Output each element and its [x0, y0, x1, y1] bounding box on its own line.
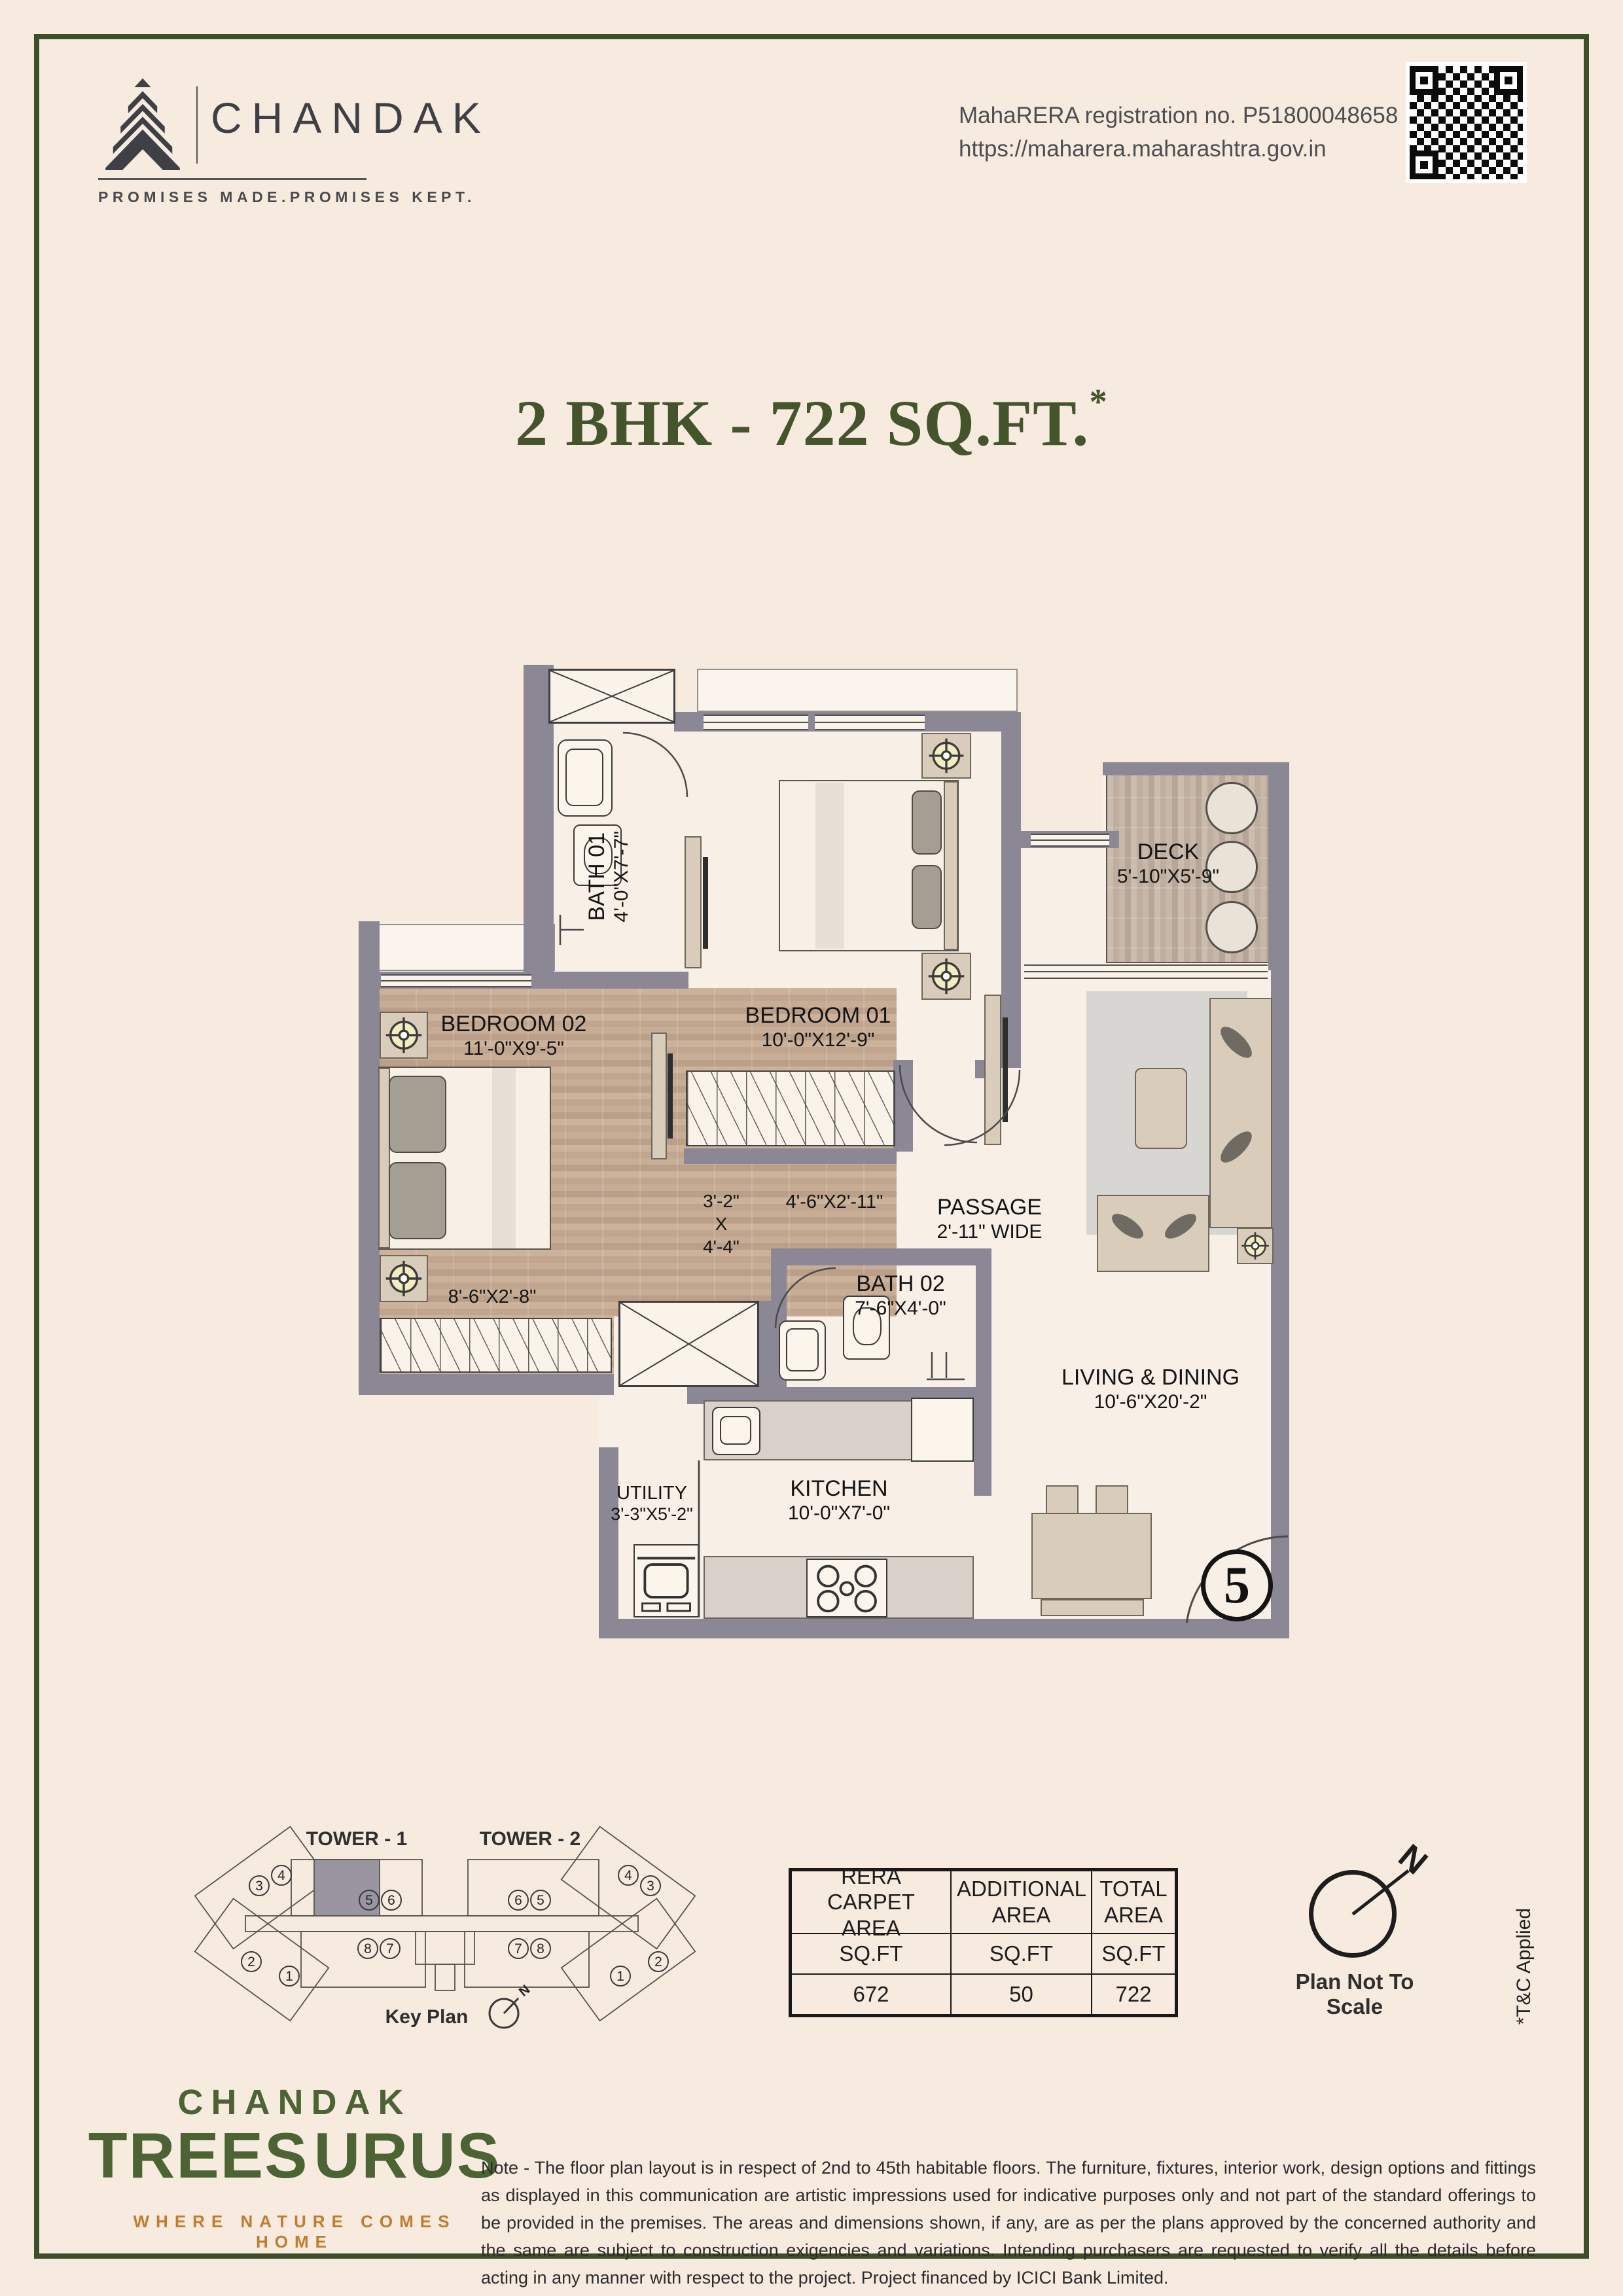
room-name: LIVING & DINING [1026, 1364, 1275, 1390]
floor-plan: BATH 01 4'-0"X7'-7" BEDROOM 01 10'-0"X12… [321, 641, 1446, 1623]
sofa [1209, 998, 1272, 1228]
qr-finder-icon [1494, 66, 1523, 95]
dining-table [1031, 1513, 1152, 1599]
wall [359, 921, 380, 1395]
keyplan-caption: Key Plan [385, 2006, 469, 2028]
unit-number: 3 [647, 1879, 654, 1894]
room-name: PASSAGE [908, 1194, 1071, 1220]
compass-north-label: N [1391, 1837, 1435, 1882]
room-label-bath2: BATH 02 7'-6"X4'-0" [822, 1271, 979, 1320]
kitchen-sink [712, 1407, 760, 1455]
ledge [697, 669, 1018, 712]
room-label-bedroom2: BEDROOM 02 11'-0"X9'-5" [402, 1011, 625, 1061]
unit-number: 8 [364, 1941, 372, 1956]
room-name: BEDROOM 02 [402, 1011, 625, 1037]
dining-bench [1041, 1599, 1144, 1616]
table-header: TOTAL AREA [1092, 1871, 1175, 1934]
wall [599, 1619, 1289, 1638]
dining-chair [1096, 1485, 1128, 1514]
pillow [912, 865, 942, 929]
key-plan: TOWER - 1 TOWER - 2 Key Plan 3 4 5 6 8 7… [183, 1819, 707, 2068]
unit-number: 4 [277, 1868, 285, 1883]
room-name: DECK [1099, 839, 1237, 865]
unit-number: 2 [247, 1954, 255, 1969]
table-value: 50 [952, 1975, 1092, 2014]
table-unit: SQ.FT [952, 1934, 1092, 1975]
side-table [1237, 1227, 1274, 1264]
tv-screen [668, 1053, 673, 1139]
unit-number: 4 [624, 1868, 632, 1883]
brochure-page: CHANDAK PROMISES MADE.PROMISES KEPT. Mah… [0, 0, 1623, 2296]
wall [359, 1374, 614, 1395]
wall [893, 1060, 913, 1152]
room-dim: 4'-0"X7'-7" [610, 831, 633, 922]
pillow [389, 1076, 446, 1153]
title-asterisk: * [1089, 381, 1108, 421]
room-label-kitchen: KITCHEN 10'-0"X7'-0" [741, 1475, 937, 1525]
wall [1268, 762, 1289, 970]
brand-tagline: PROMISES MADE.PROMISES KEPT. [98, 188, 476, 206]
side-note: *T&C Applied [1513, 1888, 1535, 2045]
loveseat [1097, 1195, 1209, 1272]
dining-chair [1046, 1485, 1079, 1514]
tv-unit [685, 836, 702, 968]
qr-code [1406, 62, 1527, 183]
side-note-text: *T&C Applied [1513, 1908, 1535, 2024]
dim-line: 4'-4" [675, 1235, 767, 1258]
nightstand [921, 733, 971, 779]
room-dim: 5'-10"X5'-9" [1099, 865, 1237, 888]
window [1024, 964, 1268, 979]
room-label-bath1: BATH 01 4'-0"X7'-7" [581, 782, 636, 972]
bed-runner [815, 783, 844, 949]
wall [1001, 712, 1021, 995]
qr-pattern [1410, 66, 1523, 179]
duct-shaft [618, 1301, 759, 1387]
table-header: ADDITIONAL AREA [952, 1871, 1092, 1934]
unit-number: 7 [514, 1941, 522, 1956]
chandak-pyramid-logo-icon [99, 77, 186, 170]
unit-number: 3 [255, 1879, 263, 1894]
logo-divider [196, 86, 198, 164]
footer-brand-name: CHANDAK [111, 2082, 478, 2123]
qr-finder-icon [1410, 150, 1438, 179]
pillow [389, 1162, 446, 1239]
sink-basin [786, 1328, 819, 1371]
unit-number: 5 [365, 1893, 373, 1908]
room-label-passage: PASSAGE 2'-11" WIDE [908, 1194, 1071, 1244]
logo-text-left: TREES [88, 2119, 309, 2193]
pillow [912, 790, 942, 855]
table-unit: SQ.FT [1092, 1934, 1175, 1975]
qr-finder-icon [1410, 66, 1438, 95]
wall [1103, 762, 1289, 775]
bed-headboard [944, 781, 958, 950]
wall [758, 1301, 771, 1387]
wall [684, 1148, 897, 1164]
wardrobe-dimension: 4'-6"X2'-11" [749, 1191, 919, 1213]
wardrobe [686, 1070, 895, 1146]
logo-rule [98, 178, 366, 180]
room-label-living: LIVING & DINING 10'-6"X20'-2" [1026, 1364, 1275, 1414]
unit-number: 1 [285, 1969, 293, 1984]
window [815, 715, 925, 730]
wall [599, 1447, 618, 1619]
bathroom-sink [779, 1320, 826, 1381]
bed-runner [492, 1068, 516, 1248]
disclaimer-note: Note - The floor plan layout is in respe… [481, 2154, 1536, 2292]
window [1031, 834, 1109, 847]
rera-registration: MahaRERA registration no. P51800048658 h… [959, 99, 1398, 166]
tv-screen [1003, 1017, 1008, 1122]
rera-url: https://maharera.maharashtra.gov.in [959, 133, 1398, 166]
deck-chair [1205, 782, 1258, 834]
room-dim: 10'-0"X12'-9" [713, 1029, 923, 1051]
unit-number: 6 [387, 1893, 395, 1908]
room-name: BATH 02 [822, 1271, 979, 1297]
room-dim: 11'-0"X9'-5" [402, 1037, 625, 1060]
room-name: BEDROOM 01 [713, 1002, 923, 1029]
table-value: 672 [792, 1975, 952, 2014]
wall [1271, 955, 1289, 1638]
room-dim: 10'-0"X7'-0" [741, 1502, 937, 1525]
tower2-label: TOWER - 2 [480, 1828, 580, 1850]
wall [771, 1248, 991, 1265]
unit-number: 8 [537, 1941, 544, 1956]
unit-number: 7 [386, 1941, 394, 1956]
coffee-table [1135, 1068, 1187, 1149]
table-value: 722 [1092, 1975, 1175, 2014]
rera-number: MahaRERA registration no. P51800048658 [959, 99, 1398, 133]
table-header: RERA CARPET AREA [792, 1871, 952, 1934]
room-label-deck: DECK 5'-10"X5'-9" [1099, 839, 1237, 889]
wardrobe-dimension: 8'-6"X2'-8" [414, 1286, 571, 1308]
unit-number: 1 [616, 1969, 624, 1984]
room-dim: 7'-6"X4'-0" [822, 1297, 979, 1320]
wardrobe [380, 1318, 612, 1373]
wall [537, 972, 688, 989]
room-dim: 2'-11" WIDE [908, 1220, 1071, 1243]
window [704, 715, 808, 730]
brand-name: CHANDAK [211, 93, 491, 143]
kitchen-appliance [911, 1398, 974, 1462]
room-name: KITCHEN [741, 1475, 937, 1502]
unit-number-badge: 5 [1201, 1549, 1273, 1621]
sink-basin [720, 1416, 751, 1445]
stove [806, 1559, 887, 1617]
dim-line: X [675, 1212, 767, 1235]
plan-scale-note: Plan Not To Scale [1270, 1969, 1440, 2019]
tv-unit [984, 995, 1001, 1145]
window [381, 974, 531, 987]
title-text: 2 BHK - 722 SQ.FT. [515, 387, 1089, 459]
room-name: UTILITY [599, 1482, 704, 1504]
area-table: RERA CARPET AREA ADDITIONAL AREA TOTAL A… [789, 1868, 1178, 2017]
table-unit: SQ.FT [792, 1934, 952, 1975]
room-name: BATH 01 [584, 831, 610, 922]
tower1-label: TOWER - 1 [306, 1828, 407, 1850]
unit-number: 6 [514, 1893, 522, 1908]
footer-project-logo: TREESURUS [98, 2119, 491, 2193]
room-dim: 10'-6"X20'-2" [1026, 1390, 1275, 1413]
room-label-bedroom1: BEDROOM 01 10'-0"X12'-9" [713, 1002, 923, 1052]
unit-number: 2 [654, 1954, 662, 1969]
duct-shaft [548, 669, 675, 724]
page-title: 2 BHK - 722 SQ.FT.* [0, 381, 1623, 461]
wall [974, 1404, 991, 1496]
deck-chair [1205, 901, 1258, 953]
logo-text-right: URUS [314, 2119, 501, 2193]
nightstand [921, 953, 971, 1000]
unit-number: 5 [537, 1893, 544, 1908]
tv-unit [651, 1033, 667, 1159]
room-dim: 3'-3"X5'-2" [599, 1504, 704, 1525]
keyplan-north-label: N [516, 1983, 533, 2000]
room-label-utility: UTILITY 3'-3"X5'-2" [599, 1482, 704, 1525]
tv-screen [703, 857, 708, 949]
footer-brand-tagline: WHERE NATURE COMES HOME [111, 2212, 478, 2252]
washing-machine [633, 1544, 699, 1617]
